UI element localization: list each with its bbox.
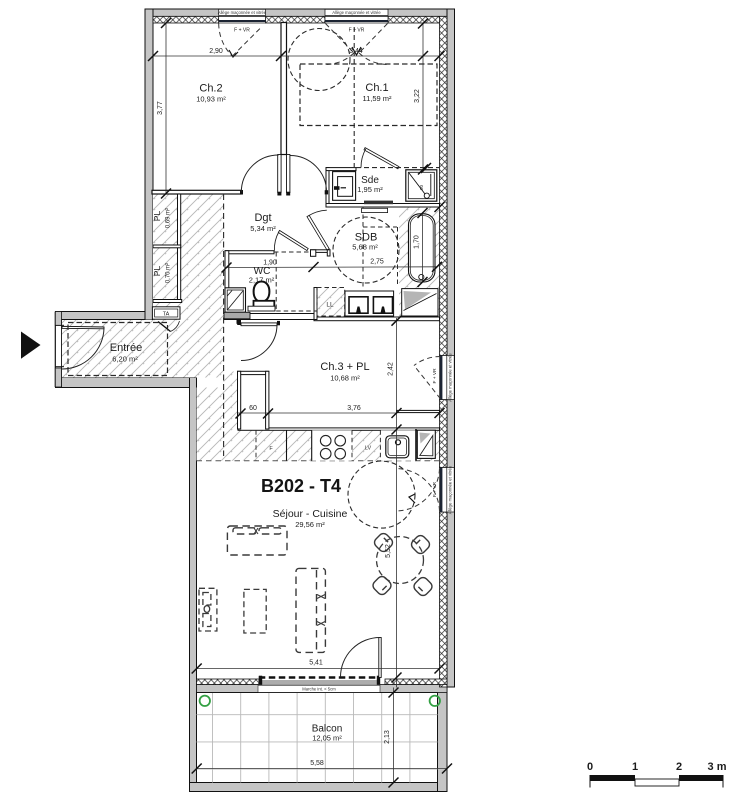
- svg-text:0,70 m²: 0,70 m²: [166, 263, 172, 283]
- svg-text:5,68 m²: 5,68 m²: [352, 243, 378, 252]
- svg-text:3,77: 3,77: [157, 101, 164, 115]
- svg-text:Allège maçonnée et vitrée: Allège maçonnée et vitrée: [332, 10, 381, 15]
- svg-text:2,42: 2,42: [388, 362, 395, 376]
- svg-text:TA: TA: [163, 312, 170, 318]
- svg-text:6,20 m²: 6,20 m²: [112, 355, 138, 364]
- svg-text:LV: LV: [365, 446, 372, 452]
- svg-text:10,93 m²: 10,93 m²: [196, 95, 226, 104]
- svg-text:0,69 m²: 0,69 m²: [166, 208, 172, 228]
- svg-text:LL: LL: [326, 302, 334, 309]
- svg-text:2: 2: [676, 761, 682, 773]
- svg-text:0: 0: [587, 761, 593, 773]
- svg-text:60: 60: [249, 405, 257, 412]
- svg-text:F + VR: F + VR: [432, 481, 438, 497]
- svg-text:Allège maçonnée et vitrée: Allège maçonnée et vitrée: [448, 353, 453, 402]
- svg-text:5,58: 5,58: [310, 760, 324, 767]
- svg-text:F + VR: F + VR: [349, 28, 365, 34]
- svg-text:3,76: 3,76: [347, 405, 361, 412]
- svg-text:1,95 m²: 1,95 m²: [357, 185, 383, 194]
- svg-text:3,22: 3,22: [414, 89, 421, 103]
- svg-text:Entrée: Entrée: [110, 342, 142, 354]
- svg-text:Allège maçonnée et vitrée: Allège maçonnée et vitrée: [448, 465, 453, 514]
- svg-text:2,13: 2,13: [384, 730, 391, 744]
- svg-text:Dgt: Dgt: [254, 212, 271, 224]
- svg-text:1,70: 1,70: [414, 235, 421, 249]
- svg-text:5,41: 5,41: [309, 660, 323, 667]
- svg-text:5,34 m²: 5,34 m²: [250, 224, 276, 233]
- svg-text:PL: PL: [152, 266, 162, 277]
- svg-text:PL: PL: [152, 211, 162, 222]
- svg-text:11,59 m²: 11,59 m²: [362, 94, 392, 103]
- svg-text:B202 - T4: B202 - T4: [261, 476, 341, 496]
- svg-text:F + VR: F + VR: [432, 368, 438, 384]
- svg-text:Ch.1: Ch.1: [365, 82, 388, 94]
- svg-text:12,05 m²: 12,05 m²: [312, 734, 342, 743]
- svg-text:Séjour - Cuisine: Séjour - Cuisine: [273, 508, 348, 520]
- svg-text:2,17 m²: 2,17 m²: [249, 276, 275, 285]
- svg-text:29,56 m²: 29,56 m²: [295, 520, 325, 529]
- svg-text:2,75: 2,75: [370, 259, 384, 266]
- svg-text:Marche int. < 5cm: Marche int. < 5cm: [302, 687, 336, 692]
- svg-text:5,52: 5,52: [385, 544, 392, 558]
- svg-text:Ch.3 + PL: Ch.3 + PL: [320, 361, 369, 373]
- svg-text:3,44: 3,44: [349, 48, 363, 55]
- svg-text:80: 80: [419, 184, 424, 190]
- svg-text:Ch.2: Ch.2: [199, 83, 222, 95]
- svg-text:1: 1: [632, 761, 638, 773]
- svg-text:Allège maçonnée et vitrée: Allège maçonnée et vitrée: [218, 10, 267, 15]
- svg-text:F + VR: F + VR: [234, 28, 250, 34]
- svg-text:10,68 m²: 10,68 m²: [330, 374, 360, 383]
- svg-text:3 m: 3 m: [708, 761, 727, 773]
- svg-text:2,90: 2,90: [209, 48, 223, 55]
